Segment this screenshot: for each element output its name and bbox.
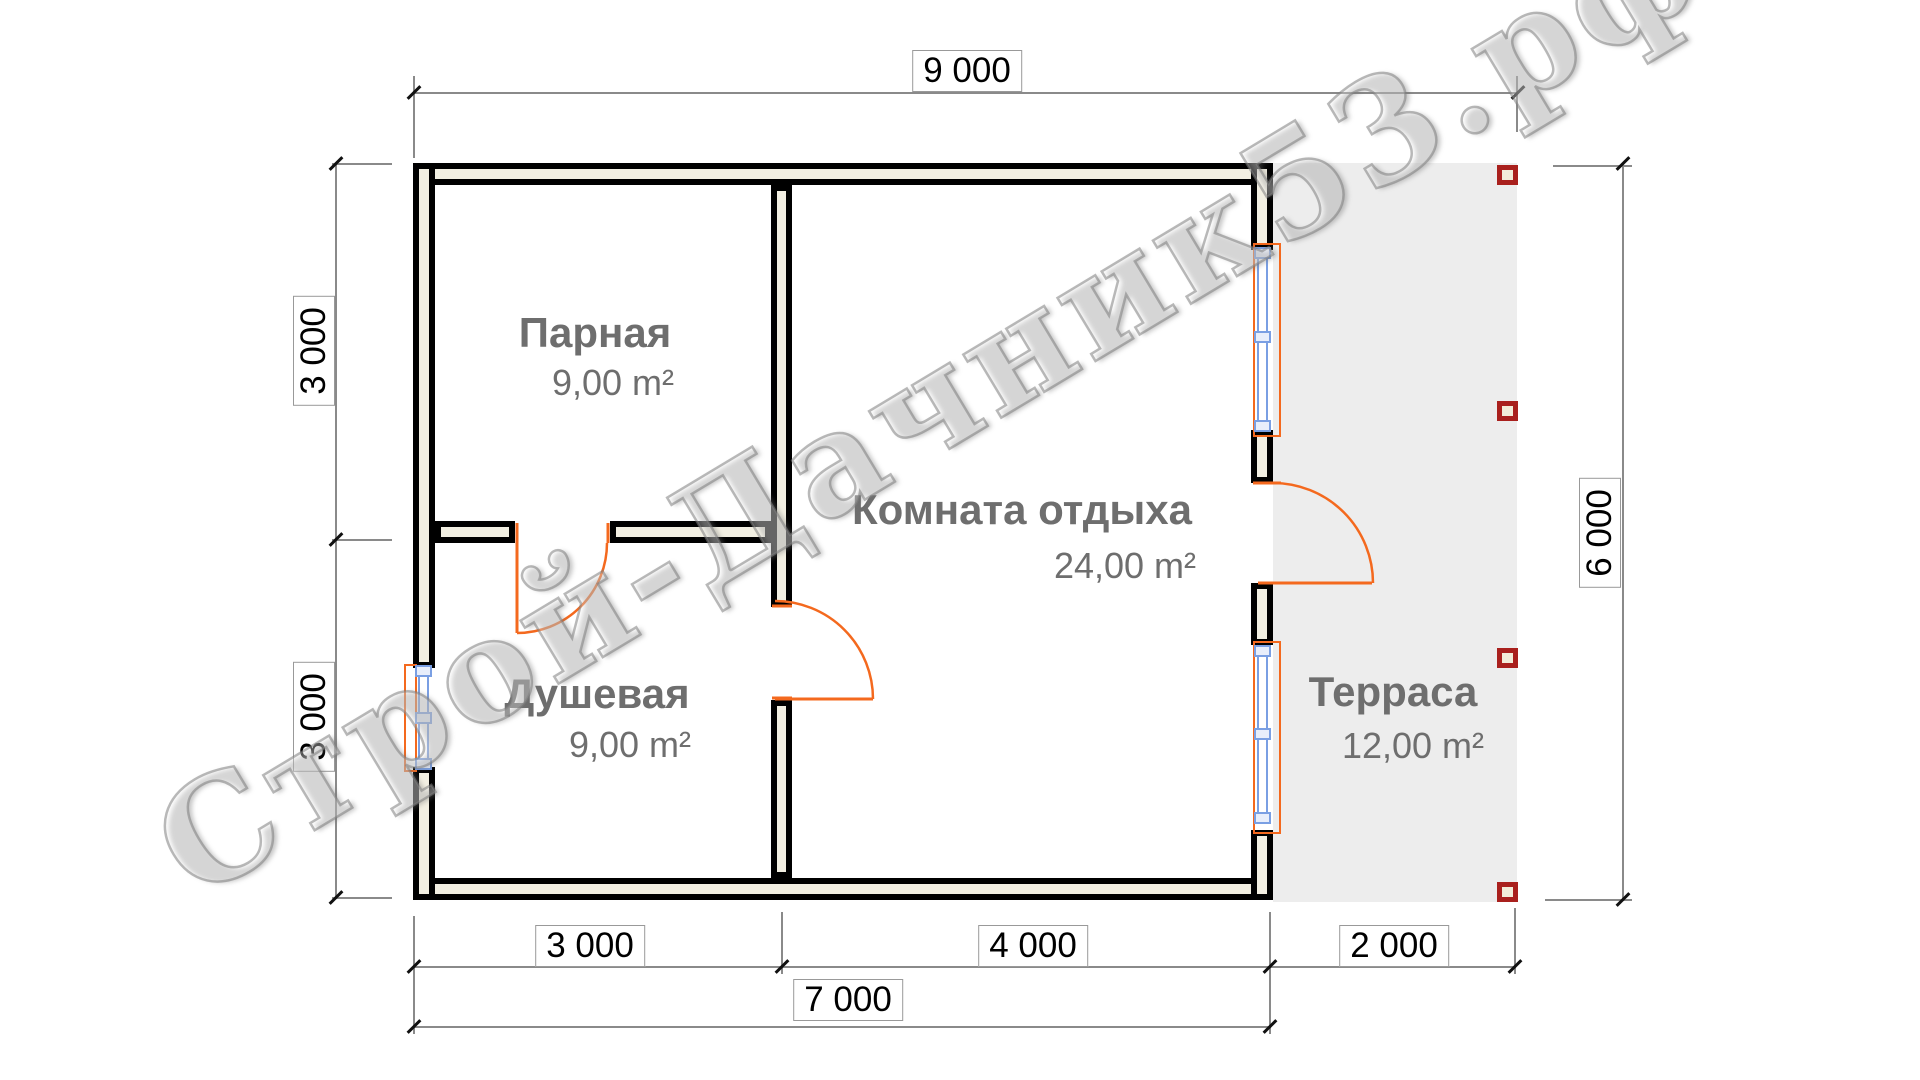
- terrace-post: [1497, 648, 1518, 668]
- extension-line: [1516, 76, 1518, 132]
- door-arc: [517, 543, 607, 633]
- extension-line: [332, 539, 392, 541]
- room-label-steam: Парная: [519, 309, 671, 357]
- door-icons-layer: [0, 0, 1920, 1080]
- dimension-label: 7 000: [793, 979, 903, 1021]
- terrace-post: [1497, 882, 1518, 902]
- extension-line: [413, 916, 415, 1034]
- dimension-label: 4 000: [978, 925, 1088, 967]
- terrace-post: [1497, 401, 1518, 421]
- room-area-steam: 9,00 m²: [552, 362, 674, 404]
- dimension-line: [413, 1026, 1270, 1028]
- door-arc: [1273, 483, 1373, 583]
- door-arc: [775, 601, 873, 699]
- extension-line: [332, 897, 392, 899]
- dimension-line: [413, 92, 1517, 94]
- floor-plan: 9 000 3 000 3 000 6 000 3 000 4 000 2 00…: [0, 0, 1920, 1080]
- room-area-lounge: 24,00 m²: [1054, 545, 1196, 587]
- dimension-line: [1622, 163, 1624, 900]
- dimension-label: 6 000: [1579, 478, 1621, 588]
- room-area-shower: 9,00 m²: [569, 724, 691, 766]
- room-label-lounge: Комната отдыха: [852, 486, 1192, 534]
- dimension-label: 2 000: [1339, 925, 1449, 967]
- dimension-label: 9 000: [912, 50, 1022, 92]
- dimension-line: [335, 163, 337, 898]
- room-label-shower: Душевая: [504, 670, 689, 718]
- terrace-post: [1497, 165, 1518, 185]
- room-area-terrace: 12,00 m²: [1342, 725, 1484, 767]
- extension-line: [332, 163, 392, 165]
- dimension-label: 3 000: [293, 296, 335, 406]
- extension-line: [1269, 912, 1271, 1034]
- dimension-label: 3 000: [535, 925, 645, 967]
- room-label-terrace: Терраса: [1309, 668, 1478, 716]
- dimension-label: 3 000: [293, 662, 335, 772]
